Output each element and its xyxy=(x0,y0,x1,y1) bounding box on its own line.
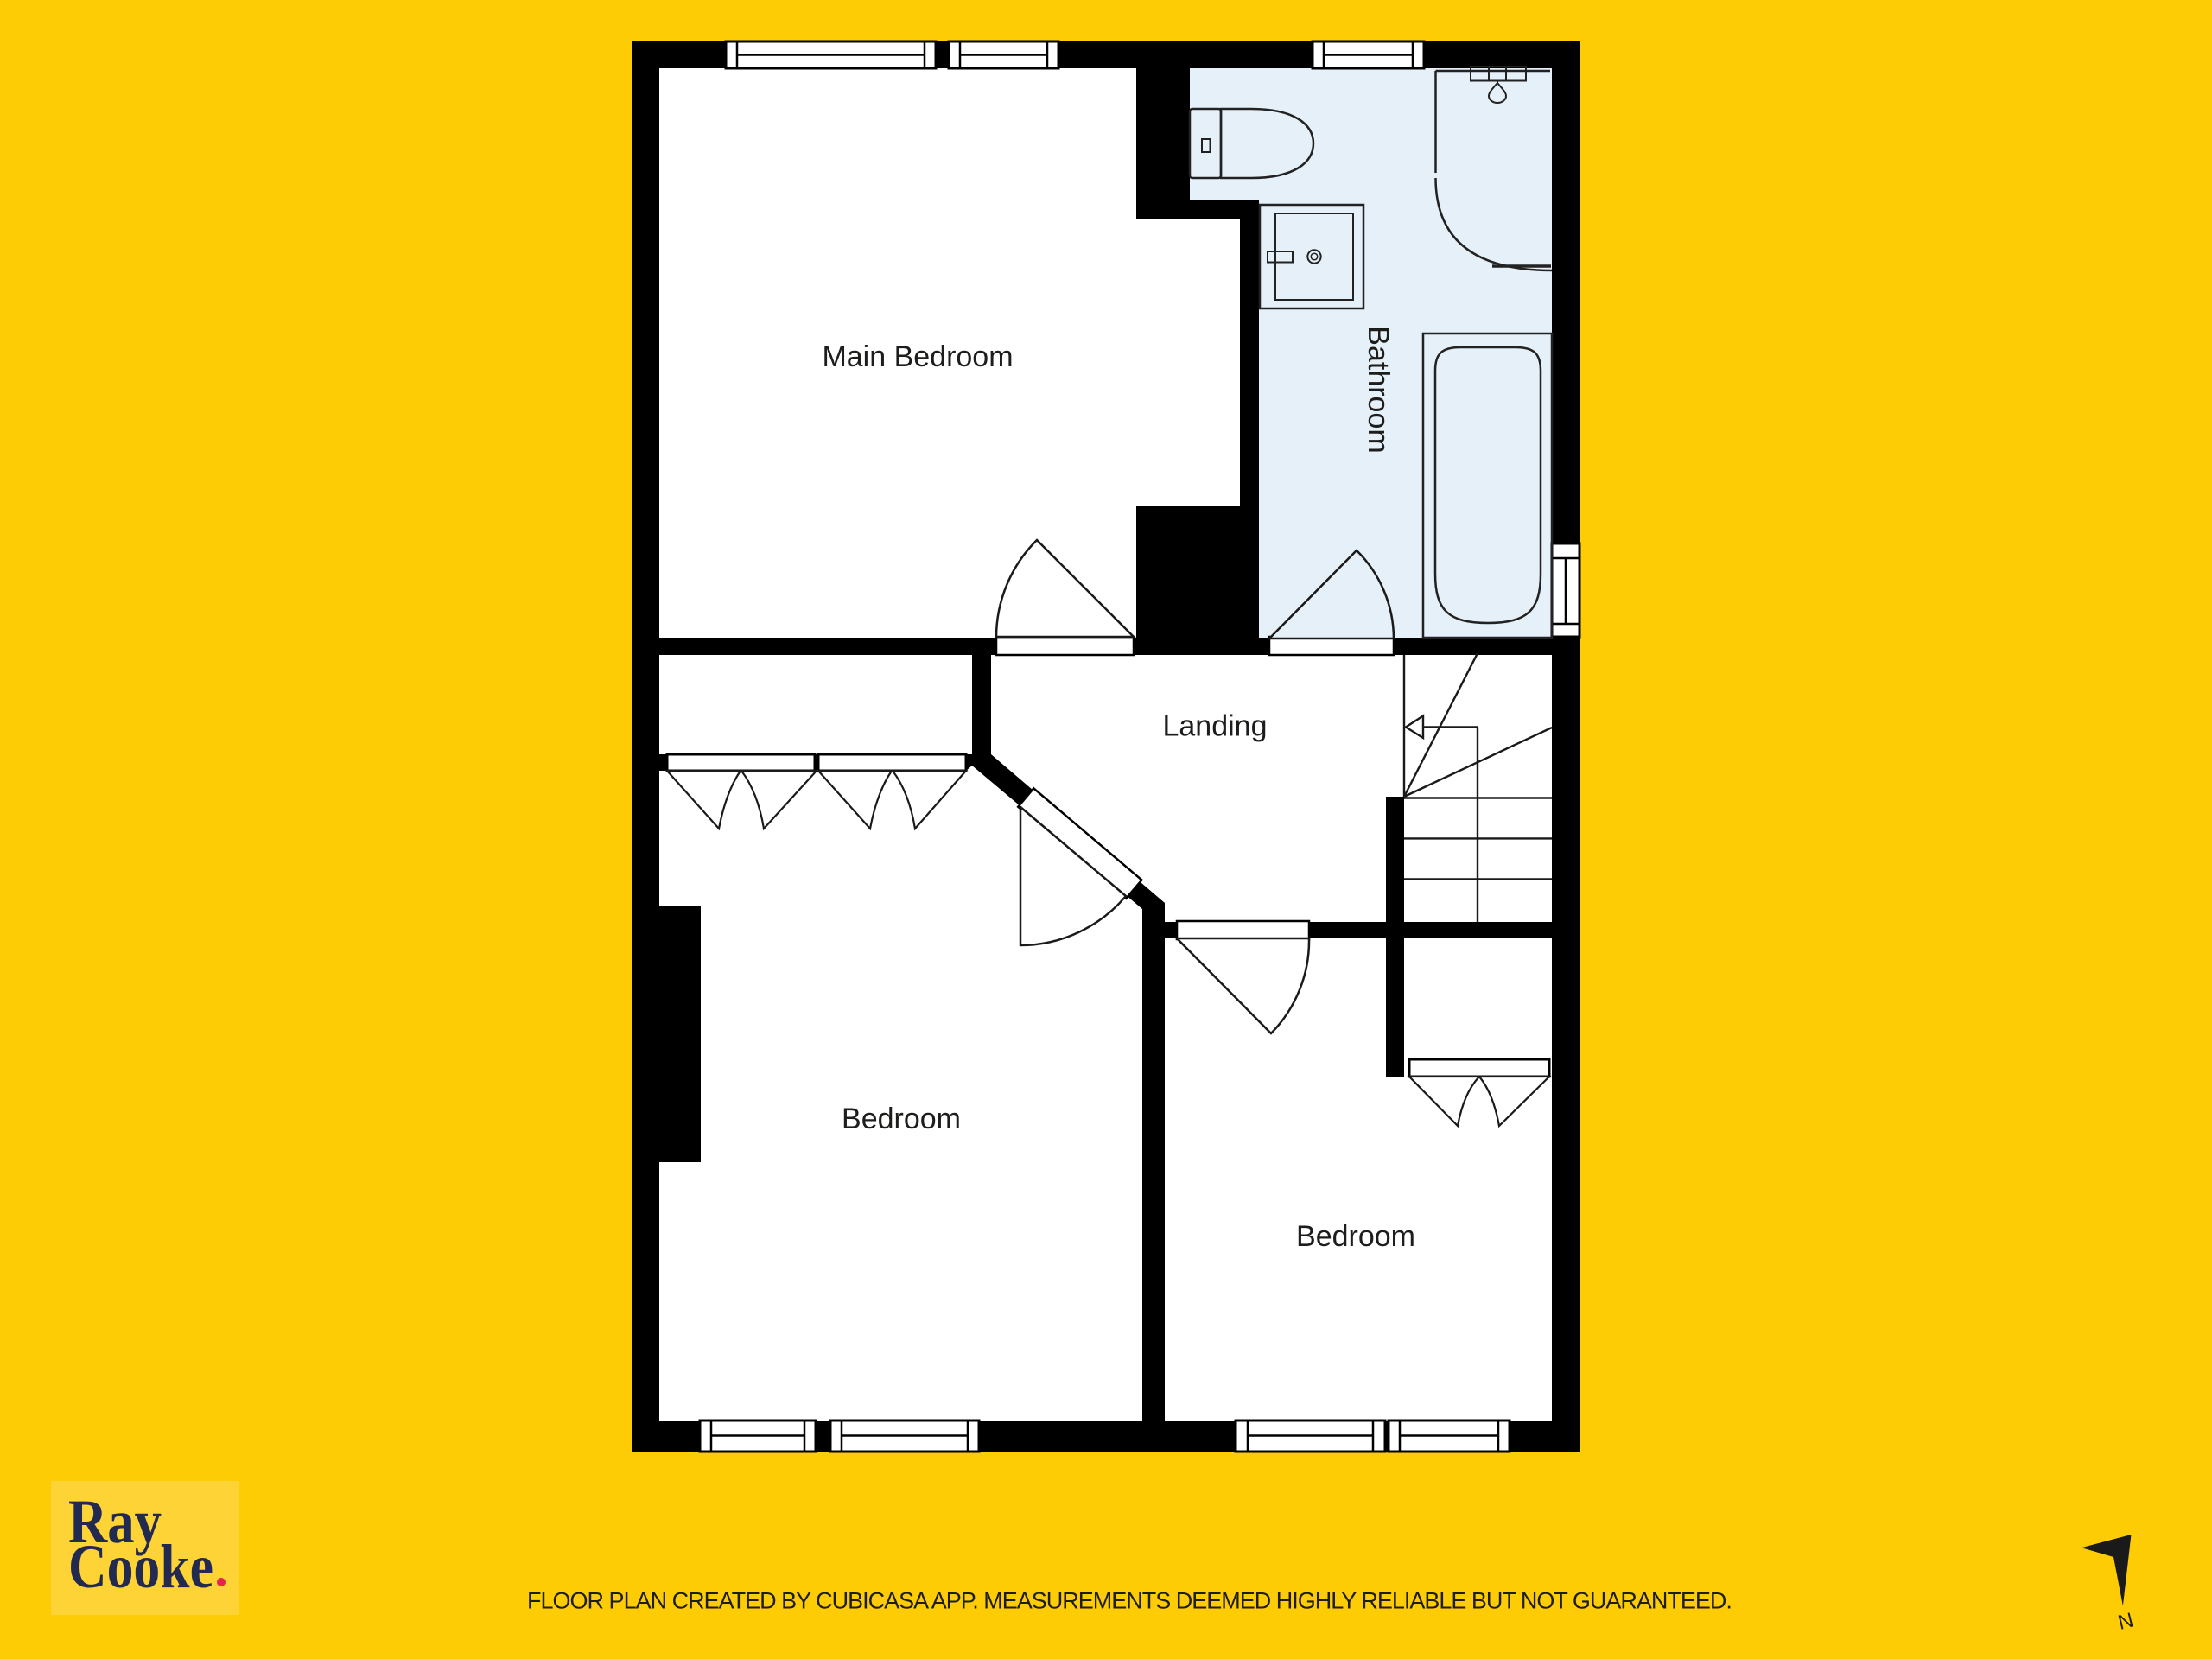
svg-text:Main Bedroom: Main Bedroom xyxy=(822,340,1013,373)
svg-text:Bedroom: Bedroom xyxy=(842,1103,961,1135)
svg-text:Bathroom: Bathroom xyxy=(1362,326,1395,453)
svg-text:FLOOR PLAN CREATED BY CUBICASA: FLOOR PLAN CREATED BY CUBICASA APP. MEAS… xyxy=(527,1588,1732,1614)
svg-text:Landing: Landing xyxy=(1162,710,1267,743)
svg-text:Cooke: Cooke xyxy=(68,1532,213,1601)
svg-text:Bedroom: Bedroom xyxy=(1296,1220,1415,1253)
